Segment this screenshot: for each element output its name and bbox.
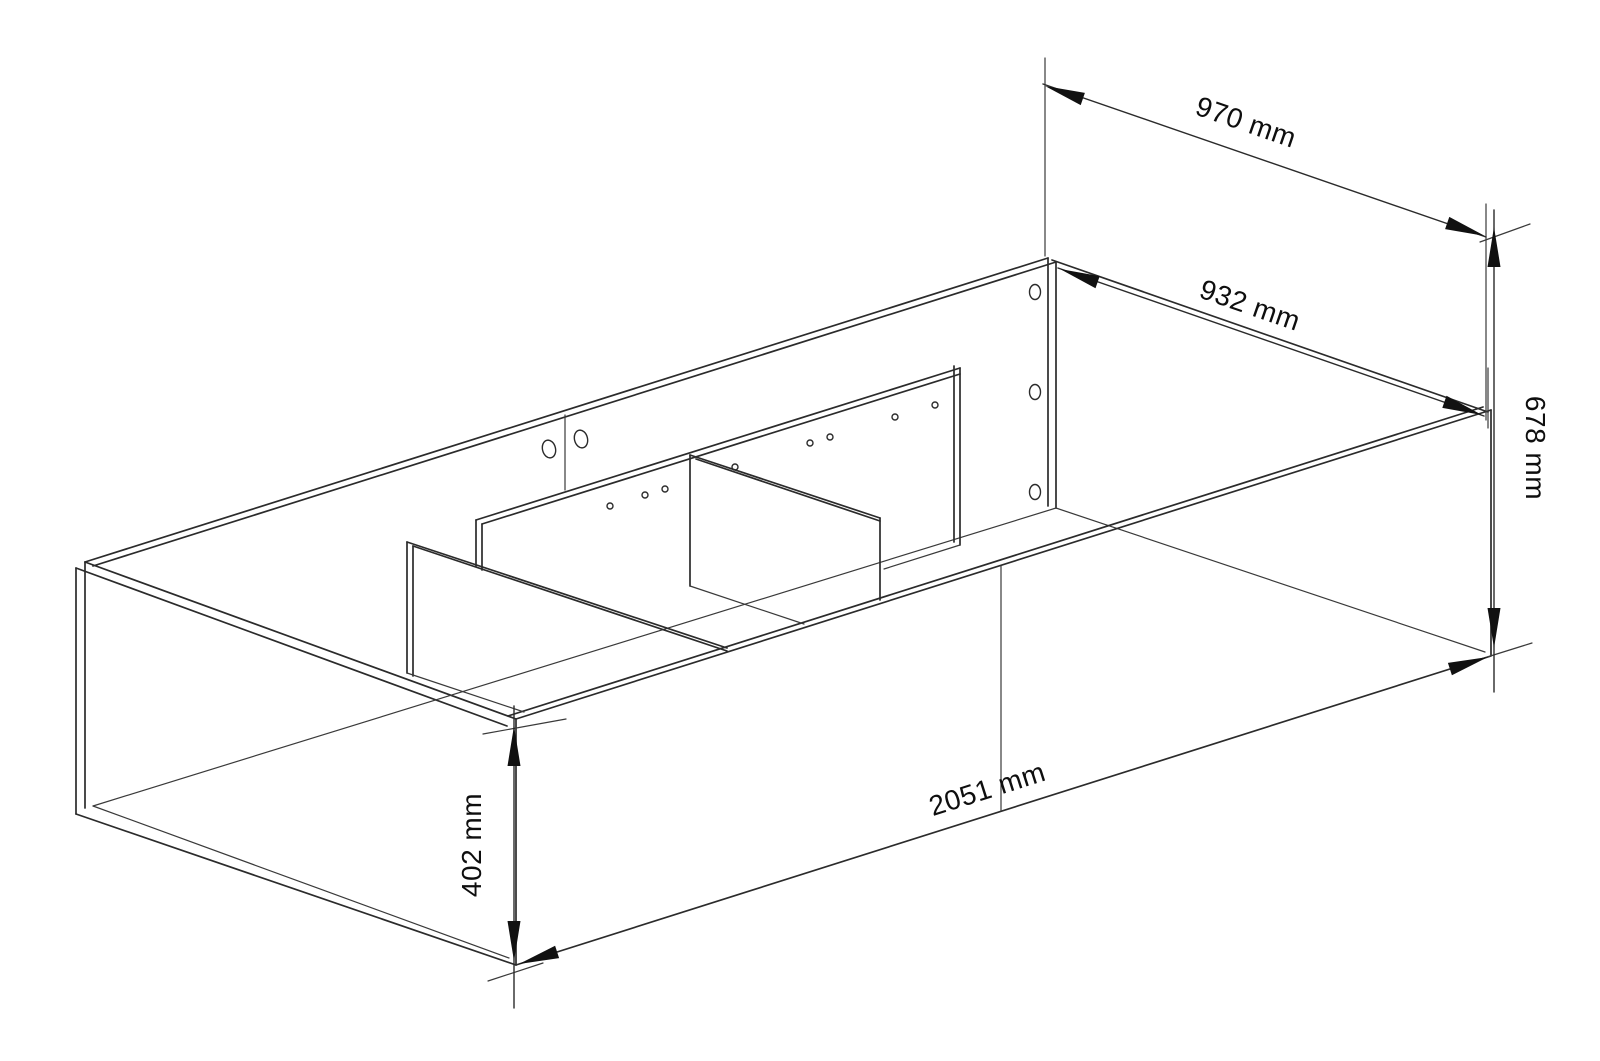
dimension-label-970: 970 mm bbox=[1192, 90, 1301, 153]
rail-top-outer bbox=[476, 368, 960, 520]
rail-top-inner bbox=[482, 374, 960, 524]
arrowhead bbox=[1488, 227, 1501, 267]
arrowhead bbox=[1445, 217, 1485, 236]
cross-divider-right bbox=[690, 455, 880, 624]
back-panel-top-inner bbox=[93, 262, 1056, 566]
divider-left-top-a bbox=[407, 542, 727, 648]
furniture-dimension-drawing: 970 mm 932 mm 678 mm 402 mm bbox=[0, 0, 1600, 1061]
dimension-height-back: 678 mm bbox=[1452, 210, 1551, 692]
dowel-hole bbox=[932, 402, 938, 408]
center-rail bbox=[476, 366, 960, 570]
front-panel-bottom-edge bbox=[516, 656, 1491, 965]
divider-left-top-b bbox=[413, 546, 727, 651]
rail-bottom-edge bbox=[884, 545, 960, 569]
arrowhead bbox=[508, 726, 521, 766]
dowel-hole bbox=[807, 440, 813, 446]
arrowhead bbox=[1045, 86, 1085, 105]
arrowhead bbox=[1448, 657, 1488, 675]
floor-back-junction bbox=[93, 508, 1056, 806]
dowel-hole bbox=[662, 486, 668, 492]
left-panel-bottom-edge bbox=[76, 814, 516, 965]
dimension-top-width: 970 mm bbox=[1043, 58, 1486, 420]
dowel-hole bbox=[892, 414, 898, 420]
dowel-hole bbox=[827, 434, 833, 440]
dimension-label-932: 932 mm bbox=[1196, 273, 1305, 336]
floor-left-junction bbox=[93, 806, 509, 958]
floor-right-junction bbox=[1056, 508, 1485, 652]
dimension-label-402: 402 mm bbox=[456, 793, 487, 897]
left-panel-top-outer bbox=[76, 568, 507, 726]
back-panel-holes bbox=[541, 285, 1041, 500]
front-panel-top-outer bbox=[516, 410, 1491, 719]
dimension-line bbox=[1058, 268, 1484, 416]
cam-hole bbox=[1030, 285, 1041, 300]
front-panel-top-inner bbox=[508, 407, 1483, 716]
left-end-panel bbox=[76, 562, 516, 965]
divider-right-top-b bbox=[696, 459, 880, 521]
divider-left-bottom bbox=[407, 673, 524, 712]
back-panel bbox=[85, 258, 1056, 958]
dimension-label-678: 678 mm bbox=[1520, 396, 1551, 500]
arrowhead bbox=[508, 921, 521, 961]
dowel-hole bbox=[642, 492, 648, 498]
cam-hole bbox=[1030, 485, 1041, 500]
back-panel-top-outer bbox=[85, 258, 1048, 562]
arrowhead bbox=[1060, 269, 1100, 288]
cam-hole bbox=[573, 429, 590, 450]
dimension-line bbox=[1043, 84, 1486, 237]
technical-drawing-page: 970 mm 932 mm 678 mm 402 mm bbox=[0, 0, 1600, 1061]
dimension-inner-width: 932 mm bbox=[1058, 268, 1488, 428]
rail-holes bbox=[607, 402, 938, 509]
cam-hole bbox=[1030, 385, 1041, 400]
front-panel bbox=[508, 407, 1491, 965]
divider-right-top-a bbox=[690, 455, 880, 518]
extension-line bbox=[1480, 224, 1530, 242]
cross-divider-left bbox=[407, 542, 727, 712]
cam-hole bbox=[541, 439, 558, 460]
arrowhead bbox=[1442, 396, 1482, 415]
dimension-label-2051: 2051 mm bbox=[925, 756, 1049, 822]
arrowhead bbox=[519, 946, 559, 964]
arrowhead bbox=[1488, 608, 1501, 648]
dowel-hole bbox=[607, 503, 613, 509]
right-end-top-edge bbox=[1052, 260, 1488, 412]
